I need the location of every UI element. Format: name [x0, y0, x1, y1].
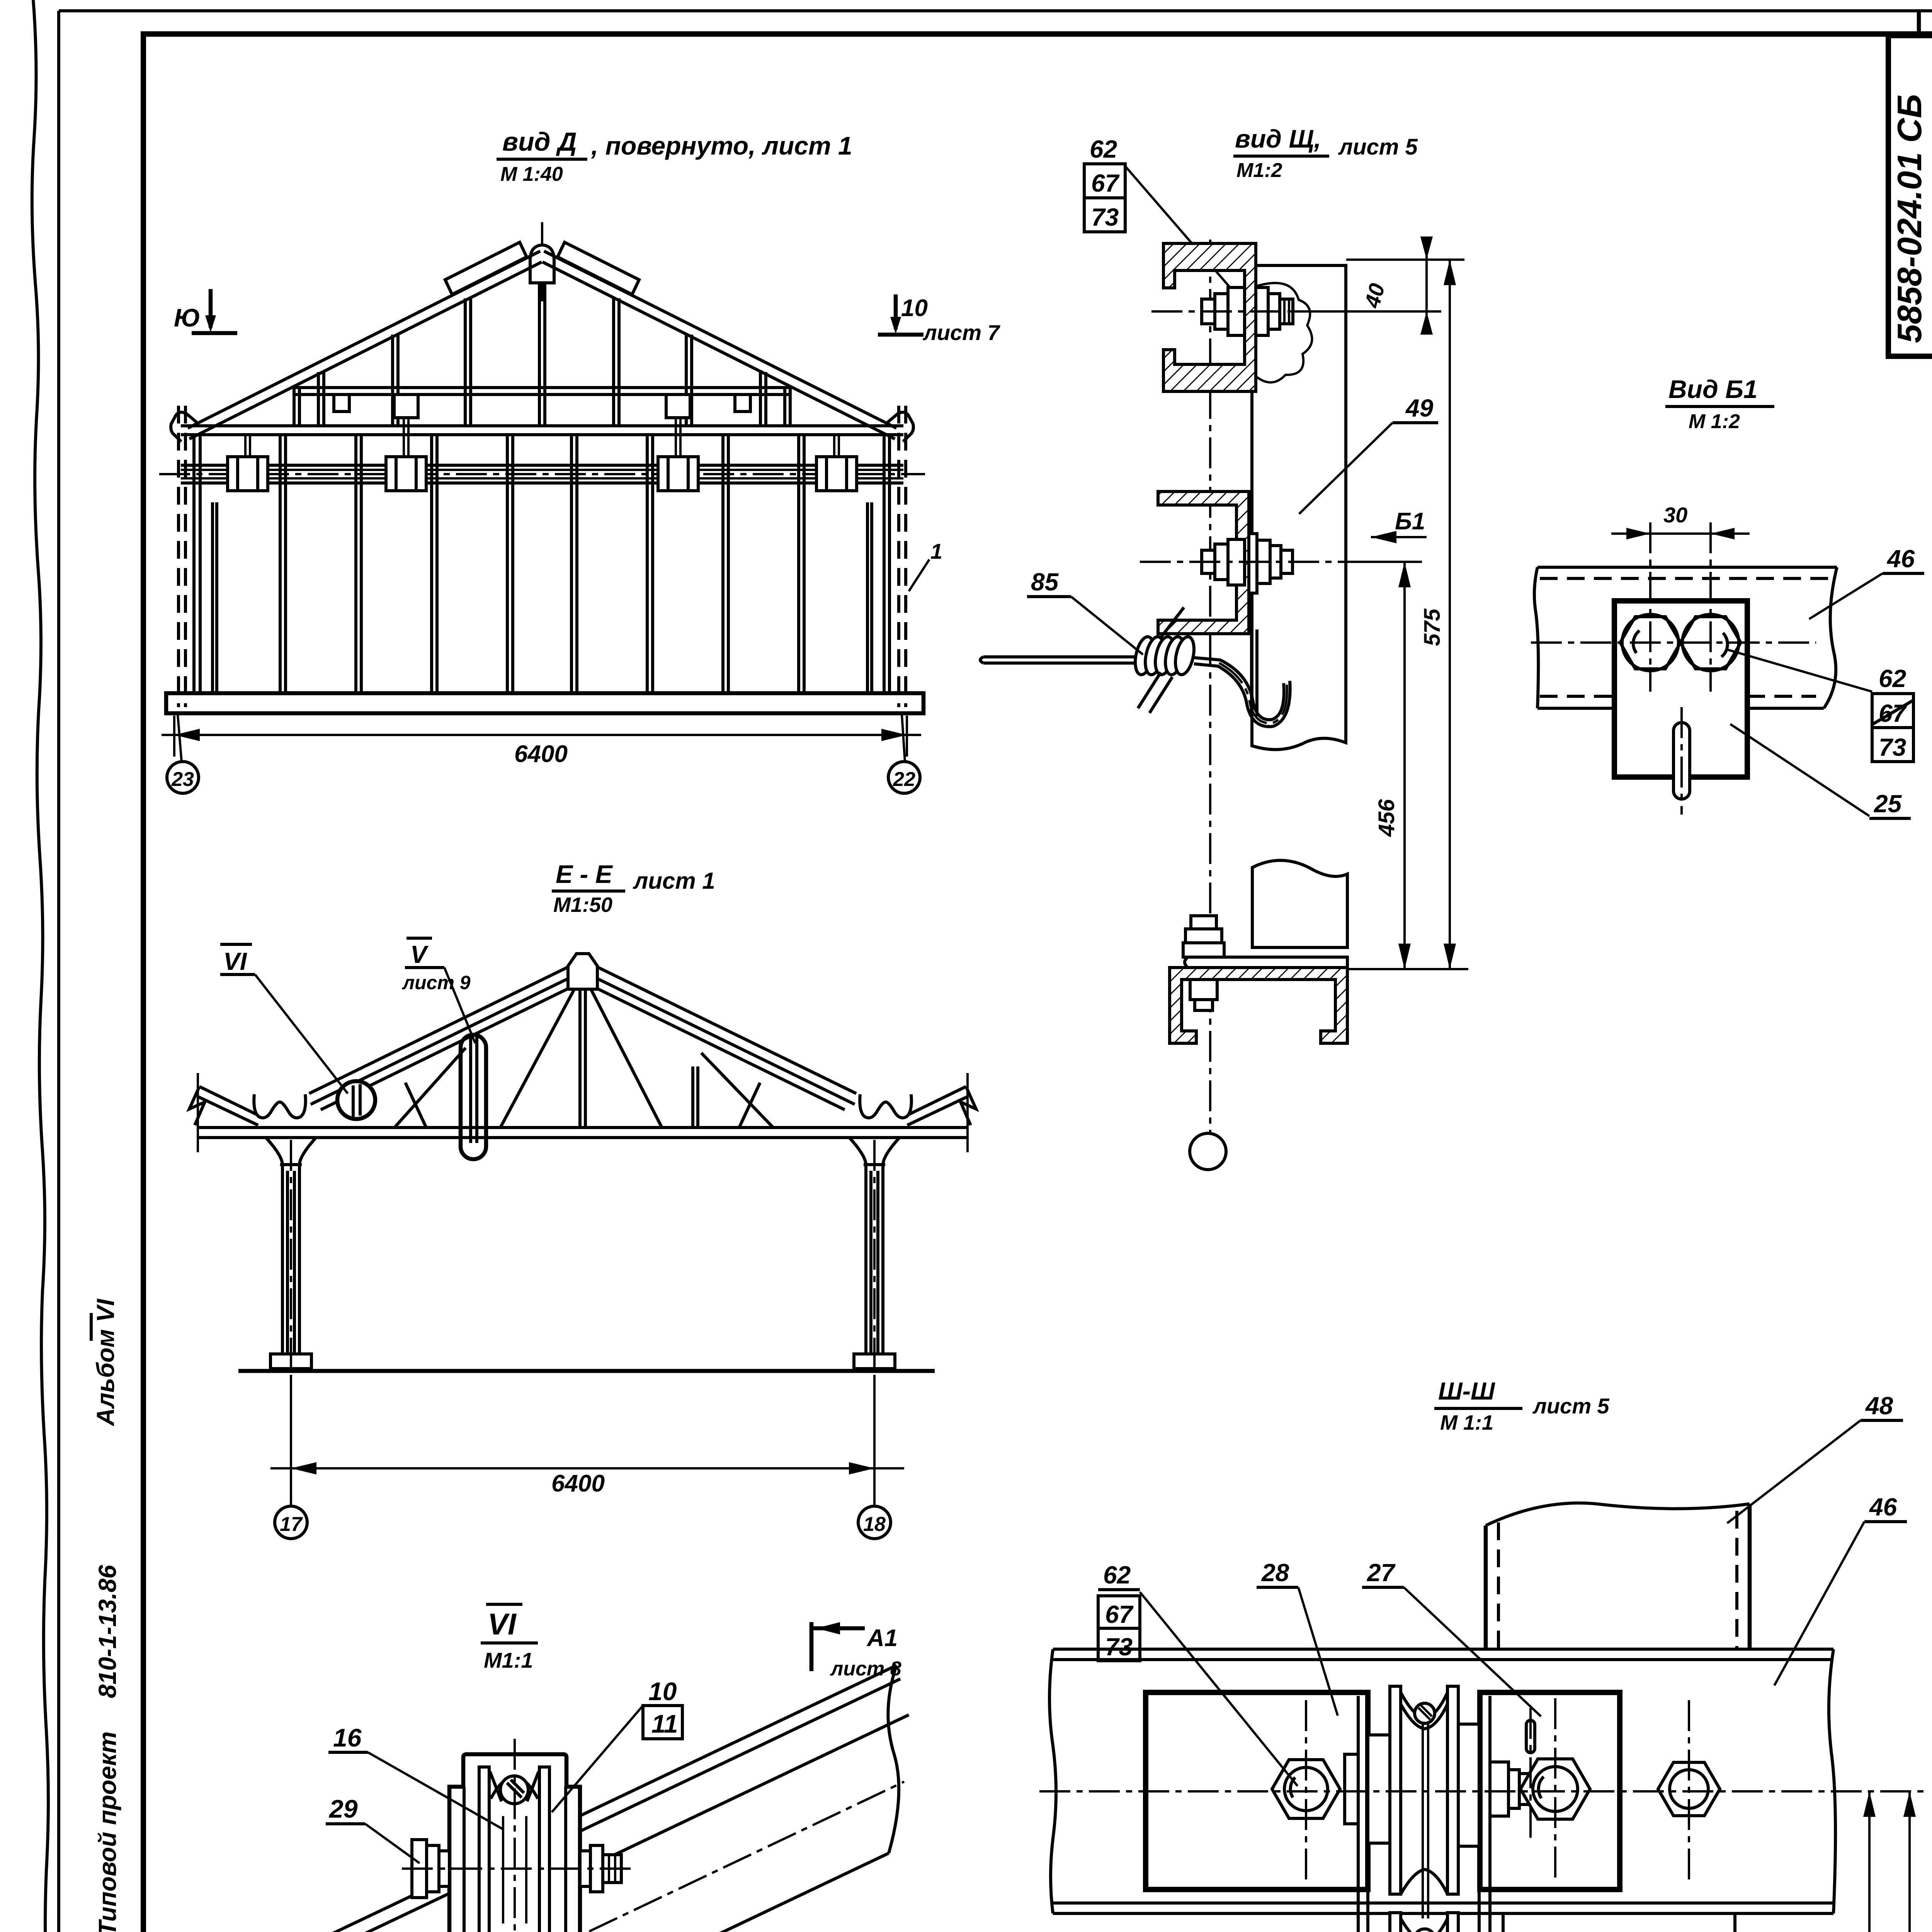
- svg-text:VI: VI: [223, 947, 247, 975]
- svg-text:VI: VI: [488, 1607, 517, 1641]
- svg-text:18: 18: [863, 1513, 886, 1536]
- svg-text:62: 62: [1879, 665, 1906, 692]
- svg-text:23: 23: [171, 768, 194, 791]
- svg-text:Е - Е: Е - Е: [556, 860, 613, 888]
- svg-text:30: 30: [1663, 503, 1687, 527]
- svg-text:48: 48: [1865, 1392, 1893, 1420]
- svg-text:лист 5: лист 5: [1338, 134, 1418, 160]
- svg-text:лист 9: лист 9: [402, 972, 471, 993]
- svg-text:17: 17: [280, 1513, 303, 1536]
- svg-text:62: 62: [1090, 135, 1117, 163]
- svg-text:М 1:2: М 1:2: [1689, 410, 1740, 433]
- svg-text:Б1: Б1: [1395, 508, 1425, 535]
- svg-text:, повернуто, лист 1: , повернуто, лист 1: [591, 131, 852, 160]
- svg-text:27: 27: [1367, 1559, 1396, 1587]
- svg-text:5858-024.01 СБ: 5858-024.01 СБ: [1890, 94, 1929, 343]
- svg-text:67: 67: [1091, 169, 1120, 197]
- svg-text:28: 28: [1261, 1559, 1289, 1587]
- svg-text:62: 62: [1103, 1561, 1131, 1589]
- svg-text:А1: А1: [866, 1625, 898, 1651]
- svg-text:49: 49: [1405, 394, 1434, 422]
- svg-text:М 1:1: М 1:1: [1440, 1411, 1493, 1434]
- svg-text:Типовой проект: Типовой проект: [94, 1731, 121, 1932]
- svg-text:85: 85: [1031, 568, 1059, 596]
- svg-text:6400: 6400: [514, 741, 568, 767]
- svg-text:22: 22: [893, 768, 915, 791]
- svg-text:вид Д: вид Д: [502, 127, 577, 156]
- svg-text:лист 7: лист 7: [922, 320, 1001, 345]
- svg-text:40: 40: [1359, 281, 1389, 311]
- svg-text:Вид Б1: Вид Б1: [1668, 375, 1758, 403]
- svg-text:67: 67: [1105, 1600, 1134, 1628]
- svg-text:М1:1: М1:1: [484, 1648, 533, 1672]
- svg-text:М1:2: М1:2: [1236, 159, 1282, 182]
- svg-text:1: 1: [930, 539, 942, 563]
- svg-text:456: 456: [1374, 799, 1399, 837]
- svg-text:лист 1: лист 1: [633, 868, 715, 894]
- svg-text:73: 73: [1105, 1633, 1133, 1661]
- svg-text:73: 73: [1879, 733, 1906, 761]
- svg-text:46: 46: [1869, 1493, 1897, 1521]
- svg-text:29: 29: [328, 1794, 358, 1823]
- svg-text:вид Щ,: вид Щ,: [1235, 124, 1321, 153]
- svg-text:10: 10: [901, 295, 928, 321]
- svg-text:10: 10: [648, 1677, 677, 1706]
- svg-text:лист 5: лист 5: [1532, 1394, 1610, 1418]
- svg-text:575: 575: [1420, 608, 1445, 646]
- svg-text:810-1-13.86: 810-1-13.86: [94, 1565, 121, 1698]
- svg-text:25: 25: [1874, 790, 1902, 818]
- svg-text:Ш-Ш: Ш-Ш: [1438, 1377, 1495, 1405]
- svg-text:46: 46: [1886, 545, 1915, 573]
- svg-text:16: 16: [333, 1723, 362, 1752]
- svg-text:Ю: Ю: [174, 303, 201, 332]
- svg-text:М 1:40: М 1:40: [500, 163, 563, 185]
- svg-text:73: 73: [1091, 203, 1119, 231]
- svg-text:6400: 6400: [551, 1470, 605, 1497]
- svg-text:11: 11: [651, 1709, 678, 1738]
- svg-text:М1:50: М1:50: [553, 893, 612, 917]
- svg-text:V: V: [410, 940, 429, 968]
- svg-text:Альбом VI: Альбом VI: [92, 1298, 119, 1427]
